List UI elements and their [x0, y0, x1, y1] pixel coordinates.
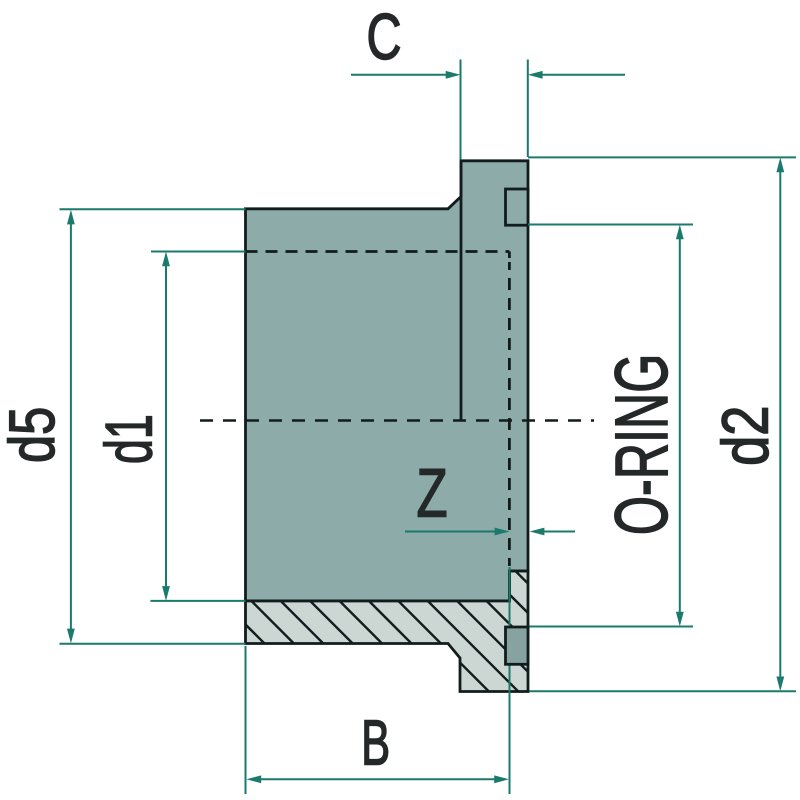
- svg-text:d1: d1: [92, 414, 166, 464]
- svg-text:B: B: [361, 706, 390, 779]
- svg-text:O-RING: O-RING: [601, 354, 683, 535]
- svg-text:Z: Z: [416, 454, 447, 531]
- svg-text:C: C: [366, 1, 401, 73]
- svg-text:d5: d5: [0, 407, 69, 463]
- svg-text:d2: d2: [709, 406, 782, 466]
